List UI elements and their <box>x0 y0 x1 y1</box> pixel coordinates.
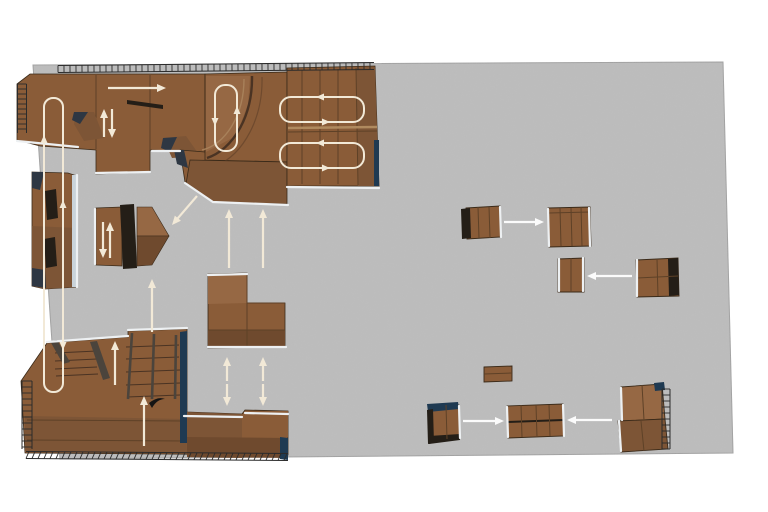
coping-edge <box>548 209 549 246</box>
mini-ramp-navy-edge <box>374 140 379 186</box>
coping-edge <box>245 413 288 414</box>
coping-edge <box>96 172 150 173</box>
kicker-pair-left <box>466 206 501 239</box>
coping-edge <box>459 406 460 438</box>
navy-edge <box>180 331 187 443</box>
mini-ramp-spine <box>288 127 377 128</box>
skatepark-plan-render <box>0 0 768 512</box>
coping-edge <box>208 274 247 275</box>
coping-edge <box>287 187 379 188</box>
pyramid-rail <box>120 204 137 269</box>
navy-edge <box>654 382 665 391</box>
kicker-dark-edge <box>461 208 471 239</box>
ledge-rail <box>45 189 58 220</box>
coping-edge <box>563 405 564 436</box>
grind-box-dark-side <box>668 258 679 296</box>
lower-flat-facet <box>25 416 187 452</box>
coping-edge <box>589 208 590 246</box>
coping-edge <box>500 207 501 237</box>
render-canvas <box>0 0 768 512</box>
stair-handrail <box>175 335 176 399</box>
navy-edge <box>280 437 288 460</box>
funbox-l-facet-top <box>208 273 247 304</box>
coping-edge <box>184 416 242 417</box>
ledge-rail <box>44 237 57 268</box>
coping-edge <box>507 407 508 437</box>
coping-edge <box>621 388 622 420</box>
launch-ramp-bottom <box>618 419 668 452</box>
